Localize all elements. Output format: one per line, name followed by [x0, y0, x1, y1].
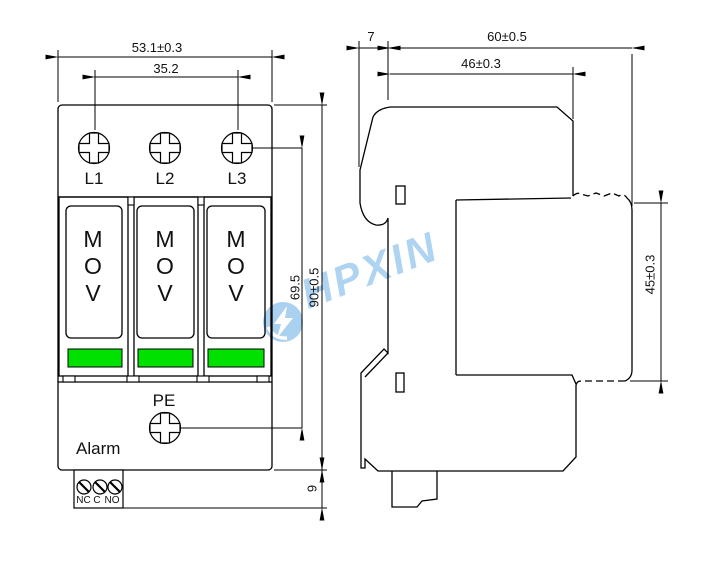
terminal-label-l3: L3: [217, 169, 257, 189]
relay-label-no: NO: [103, 495, 121, 506]
status-indicator-green: [208, 349, 264, 367]
dim-clip-depth-label: 7: [356, 29, 386, 44]
terminal-label-l2: L2: [145, 169, 185, 189]
dim-height-to-pe-label: 69.5: [288, 263, 303, 313]
side-module-block: [456, 198, 576, 384]
dim-width-terminals-label: 35.2: [136, 61, 196, 76]
terminal-label-l1: L1: [74, 169, 114, 189]
phillips-screw-icon-l3: [222, 133, 253, 164]
status-indicator-green: [138, 349, 193, 367]
technical-drawing-canvas: HPXIN: [0, 0, 711, 566]
side-slot-lower: [396, 373, 404, 392]
slotted-screw-icon-no: [108, 480, 122, 494]
terminal-label-pe: PE: [144, 391, 184, 411]
status-indicator-green: [68, 349, 122, 367]
relay-label-c: C: [92, 495, 102, 506]
dim-module-height-label: 45±0.3: [643, 243, 658, 307]
alarm-label: Alarm: [76, 439, 136, 459]
module-label-mov-2: MOV: [151, 226, 179, 307]
side-slot-upper: [396, 186, 405, 204]
phillips-screw-icon-l1: [79, 133, 110, 164]
side-break-line-top: [573, 193, 627, 198]
dim-body-depth-label: 46±0.3: [431, 56, 531, 71]
side-body-outline-left: [360, 107, 576, 471]
module-label-mov-1: MOV: [79, 226, 107, 307]
relay-label-nc: NC: [75, 495, 92, 506]
dim-width-total-label: 53.1±0.3: [107, 40, 207, 55]
slotted-screw-icon-c: [93, 480, 107, 494]
din-clip-tab: [392, 471, 437, 507]
phillips-screw-icon-pe: [150, 413, 181, 444]
side-view-drawing: [359, 41, 668, 507]
phillips-screw-icon-l2: [150, 133, 181, 164]
dim-depth-total-label: 60±0.5: [457, 29, 557, 44]
side-break-line-bottom: [576, 381, 625, 385]
slotted-screw-icon-nc: [77, 480, 91, 494]
module-label-mov-3: MOV: [222, 226, 250, 307]
dim-terminal-block-height-label: 9: [305, 479, 320, 499]
side-module-right-edge: [625, 198, 632, 381]
side-body-outline: [390, 107, 573, 196]
side-view-dimensions: [359, 41, 668, 381]
dim-height-total-label: 90±0.5: [307, 256, 322, 320]
